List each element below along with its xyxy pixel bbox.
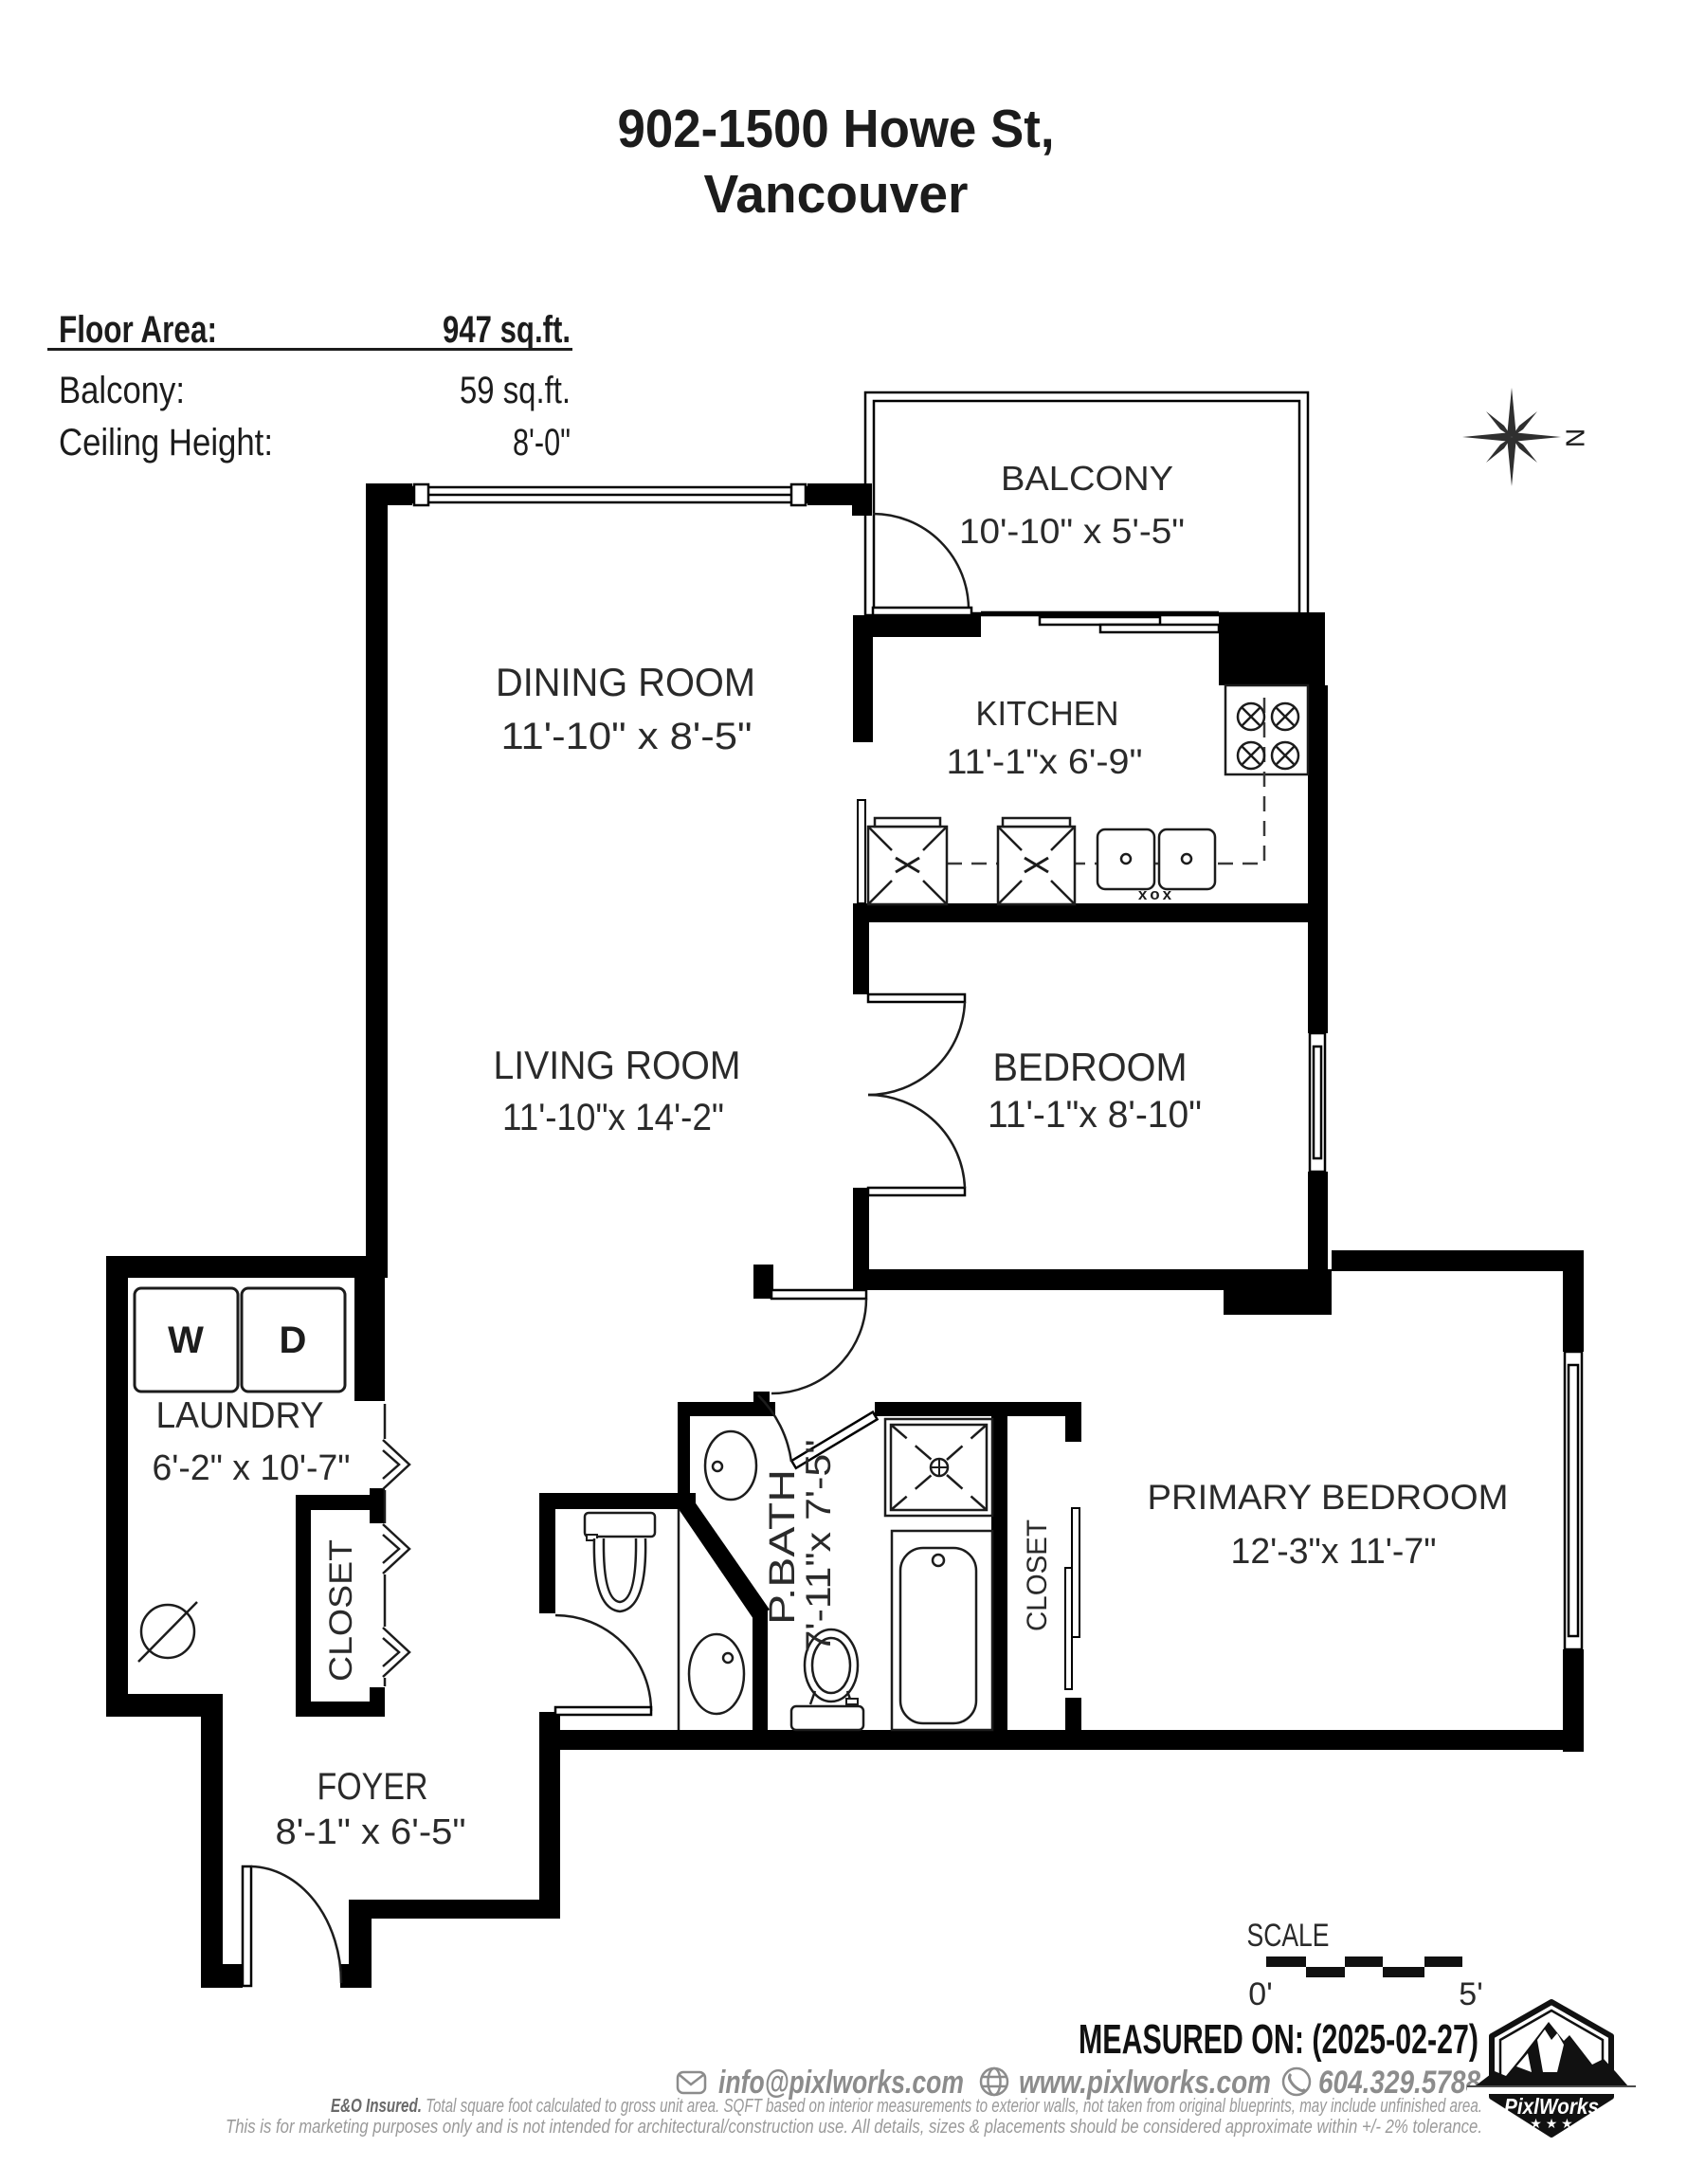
svg-text:Vancouver: Vancouver (704, 164, 969, 225)
svg-text:6'-2" x 10'-7": 6'-2" x 10'-7" (153, 1448, 351, 1488)
svg-text:0': 0' (1248, 1976, 1272, 2012)
svg-text:KITCHEN: KITCHEN (976, 694, 1119, 733)
svg-text:8'-0": 8'-0" (513, 422, 571, 464)
svg-text:LAUNDRY: LAUNDRY (156, 1395, 324, 1436)
svg-text:11'-10"x 14'-2": 11'-10"x 14'-2" (502, 1097, 724, 1138)
svg-text:10'-10" x 5'-5": 10'-10" x 5'-5" (959, 512, 1185, 551)
svg-text:N: N (1561, 428, 1590, 447)
svg-text:FOYER: FOYER (317, 1766, 428, 1808)
svg-text:DINING ROOM: DINING ROOM (496, 660, 755, 704)
svg-text:8'-1" x 6'-5": 8'-1" x 6'-5" (276, 1812, 466, 1852)
svg-text:SCALE: SCALE (1247, 1918, 1330, 1954)
svg-text:This is for marketing purposes: This is for marketing purposes only and … (226, 2117, 1482, 2138)
svg-text:11'-1"x 8'-10": 11'-1"x 8'-10" (988, 1094, 1202, 1136)
svg-text:Ceiling Height:: Ceiling Height: (59, 422, 273, 464)
svg-text:Floor Area:: Floor Area: (59, 309, 217, 351)
svg-text:59 sq.ft.: 59 sq.ft. (460, 370, 571, 411)
svg-text:11'-10" x 8'-5": 11'-10" x 8'-5" (501, 716, 753, 757)
svg-text:5': 5' (1459, 1976, 1482, 2012)
svg-text:947 sq.ft.: 947 sq.ft. (443, 309, 571, 351)
svg-text:MEASURED ON: (2025-02-27): MEASURED ON: (2025-02-27) (1079, 2016, 1478, 2063)
svg-text:D: D (280, 1319, 307, 1361)
svg-text:BALCONY: BALCONY (1001, 459, 1173, 498)
svg-text:Balcony:: Balcony: (59, 370, 185, 411)
svg-text:xox: xox (1138, 885, 1174, 903)
svg-text:12'-3"x 11'-7": 12'-3"x 11'-7" (1231, 1532, 1437, 1572)
svg-text:P.BATH: P.BATH (763, 1469, 803, 1625)
svg-text:E&O Insured. Total square foo: E&O Insured. Total square foot calculate… (331, 2096, 1482, 2117)
svg-text:902-1500 Howe St,: 902-1500 Howe St, (618, 99, 1055, 159)
svg-text:11'-1"x 6'-9": 11'-1"x 6'-9" (947, 742, 1143, 781)
svg-text:CLOSET: CLOSET (323, 1539, 359, 1682)
svg-text:PRIMARY BEDROOM: PRIMARY BEDROOM (1148, 1478, 1509, 1517)
svg-text:7'-11"x 7'-5": 7'-11"x 7'-5" (799, 1440, 838, 1653)
svg-text:CLOSET: CLOSET (1022, 1520, 1053, 1631)
svg-text:BEDROOM: BEDROOM (993, 1045, 1188, 1089)
svg-text:LIVING ROOM: LIVING ROOM (494, 1043, 741, 1087)
svg-text:★ ★ ★: ★ ★ ★ (1530, 2116, 1572, 2131)
svg-text:W: W (168, 1319, 204, 1361)
